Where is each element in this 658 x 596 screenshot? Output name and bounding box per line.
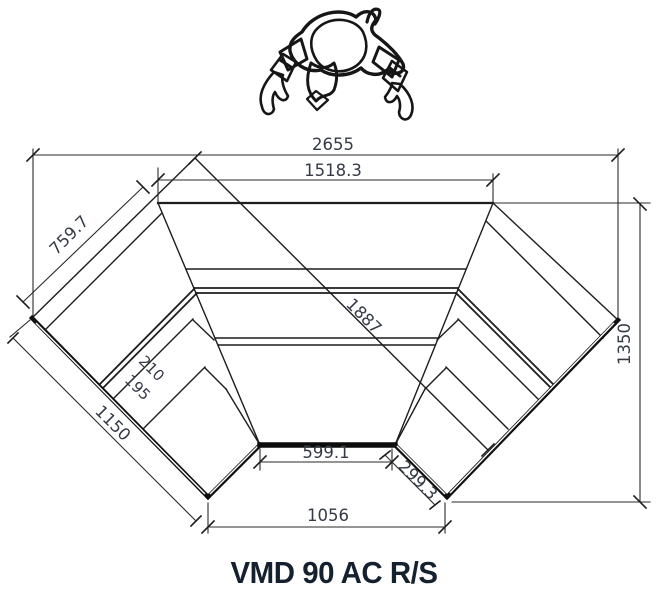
dim-left-back-length-label: 759.7 [46, 212, 93, 259]
drawing-title: VMD 90 AC R/S [231, 556, 438, 590]
right-back-edge [493, 203, 618, 320]
dim-back-straight-label: 1518.3 [304, 161, 362, 180]
dimension-tiers: 210 195 [121, 352, 168, 404]
dimension-front-span: 1056 [202, 503, 451, 533]
right-fold-line-2 [395, 389, 425, 445]
right-tier-double-2 [456, 293, 551, 388]
dimension-left-front-length: 1150 [8, 320, 201, 526]
left-chamfer-edge [208, 445, 260, 497]
dim-overall-width-label: 2655 [312, 135, 354, 154]
right-inner-back [486, 221, 603, 338]
ext-line [10, 320, 30, 337]
left-fold-line-2 [226, 389, 260, 445]
dimension-right-chamfer: 299.3 [380, 451, 441, 509]
dim-line [13, 338, 196, 521]
left-fold-line [158, 203, 260, 445]
page: 2655 1518.3 759.7 1887 1350 210 195 [0, 0, 658, 596]
dim-line [23, 187, 143, 302]
dim-center-front-label: 599.1 [302, 443, 349, 462]
right-tier-1 [458, 319, 539, 400]
dim-front-span-label: 1056 [307, 506, 349, 525]
right-tier-rung-1 [437, 320, 458, 340]
right-tier-double-1 [458, 289, 554, 385]
diagonal-edge [195, 158, 488, 450]
dimension-left-back-length: 759.7 [17, 181, 149, 308]
crab-body [311, 20, 366, 71]
right-front-edge-core [450, 323, 614, 493]
technical-drawing: 2655 1518.3 759.7 1887 1350 210 195 [0, 0, 658, 596]
left-chamfer-core [210, 446, 258, 494]
right-fold-line [395, 203, 493, 445]
right-tier-rung-2 [425, 368, 446, 389]
right-tier-2 [446, 367, 508, 429]
dim-diagonal-label: 1887 [342, 295, 385, 338]
left-front-edge-core [36, 323, 205, 494]
dim-right-chamfer-label: 299.3 [394, 457, 441, 504]
dim-right-depth-label: 1350 [615, 323, 634, 365]
left-tier-rung-2 [205, 368, 226, 389]
crab-mascot-icon [261, 9, 413, 119]
